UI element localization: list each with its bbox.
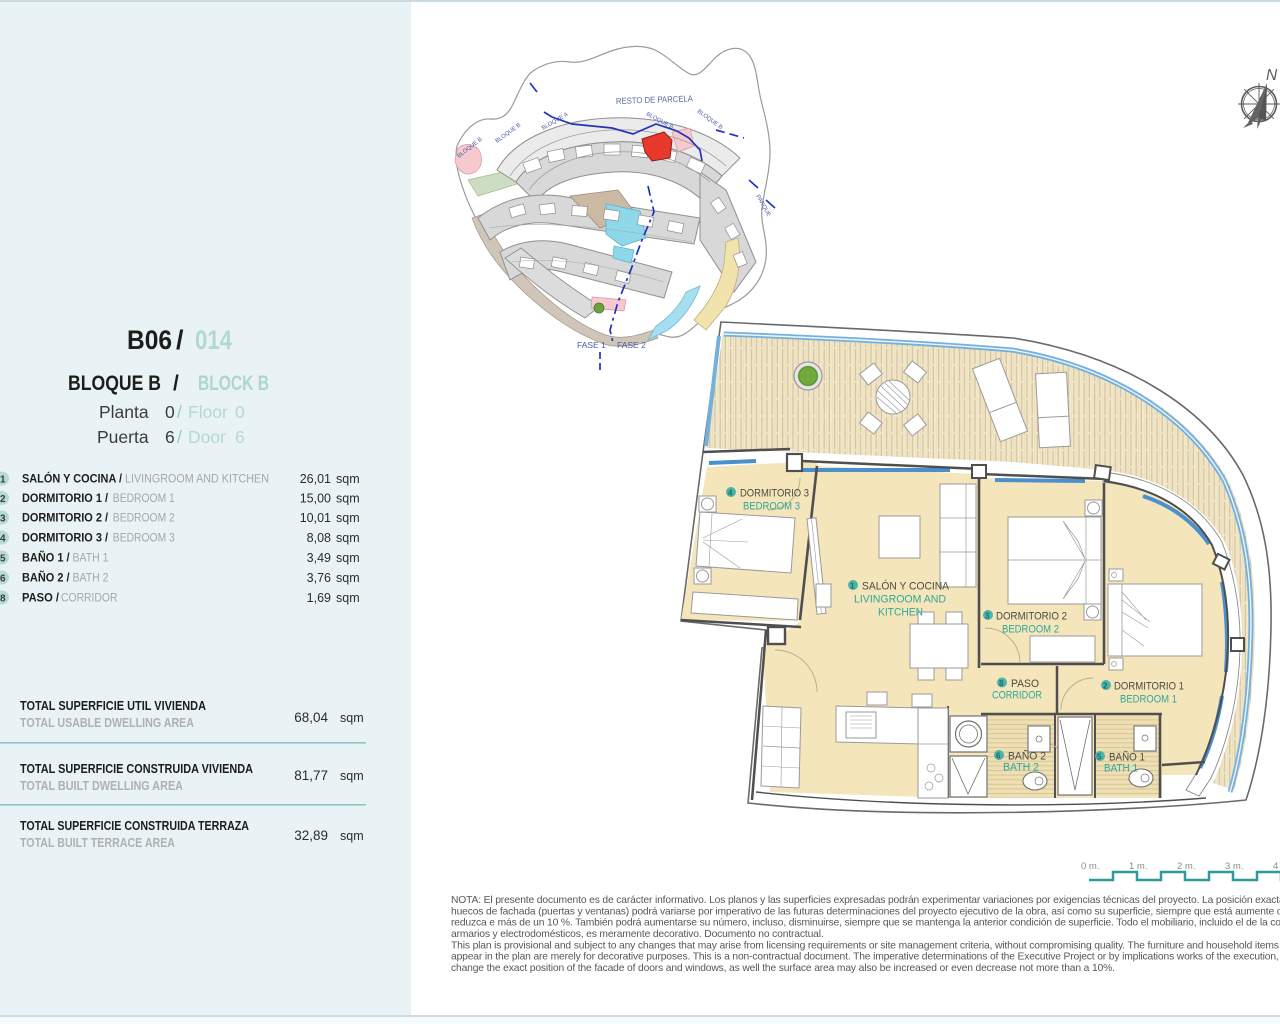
svg-text:014: 014: [195, 325, 232, 355]
svg-text:sqm: sqm: [340, 769, 364, 783]
svg-text:2: 2: [0, 494, 6, 505]
svg-text:sqm: sqm: [340, 829, 364, 843]
svg-text:BLOQUE B: BLOQUE B: [68, 372, 161, 395]
svg-text:8: 8: [0, 594, 6, 605]
svg-text:BAÑO 1 /: BAÑO 1 /: [22, 552, 70, 565]
svg-text:change the exact position of t: change the exact position of the facade …: [451, 963, 1115, 974]
svg-text:sqm: sqm: [336, 511, 360, 525]
svg-text:CORRIDOR: CORRIDOR: [992, 690, 1042, 702]
svg-text:SALÓN Y COCINA /: SALÓN Y COCINA /: [22, 473, 123, 486]
svg-text:DORMITORIO 1: DORMITORIO 1: [1114, 681, 1184, 693]
svg-text:4: 4: [728, 489, 733, 498]
svg-text:3,76: 3,76: [307, 571, 331, 585]
svg-text:huecos de fachada (puertas y v: huecos de fachada (puertas y ventanas) p…: [451, 906, 1280, 917]
svg-text:BEDROOM 1: BEDROOM 1: [1120, 694, 1177, 706]
svg-text:10,01: 10,01: [300, 511, 331, 525]
svg-text:3: 3: [0, 514, 6, 525]
svg-text:DORMITORIO 1 /: DORMITORIO 1 /: [22, 493, 109, 505]
svg-text:81,77: 81,77: [294, 768, 328, 783]
svg-text:15,00: 15,00: [300, 492, 331, 506]
svg-text:BEDROOM 2: BEDROOM 2: [1002, 624, 1059, 636]
svg-text:5: 5: [1097, 753, 1102, 762]
svg-text:1 m.: 1 m.: [1129, 861, 1147, 872]
svg-text:armarios y electrodomésticos,: armarios y electrodomésticos, es meramen…: [451, 929, 824, 940]
svg-text:N: N: [1266, 67, 1278, 84]
svg-text:3,49: 3,49: [307, 551, 331, 565]
svg-text:DORMITORIO 3: DORMITORIO 3: [740, 488, 809, 500]
svg-text:/: /: [176, 325, 184, 355]
svg-text:CORRIDOR: CORRIDOR: [61, 593, 118, 605]
svg-text:FASE 2: FASE 2: [617, 340, 646, 350]
svg-text:B06: B06: [127, 325, 172, 355]
svg-text:/: /: [177, 427, 182, 447]
svg-text:/: /: [177, 402, 182, 422]
svg-text:Door 6: Door 6: [188, 427, 245, 447]
svg-text:This plan is provisional and s: This plan is provisional and subject to …: [451, 940, 1280, 951]
svg-text:2: 2: [1103, 682, 1108, 691]
svg-text:TOTAL USABLE DWELLING AREA: TOTAL USABLE DWELLING AREA: [20, 715, 194, 730]
svg-text:TOTAL BUILT DWELLING AREA: TOTAL BUILT DWELLING AREA: [20, 778, 183, 793]
svg-text:BATH 1: BATH 1: [1104, 763, 1138, 775]
svg-text:SALÓN Y COCINA: SALÓN Y COCINA: [862, 580, 949, 593]
svg-text:NOTA: El presente documento es: NOTA: El presente documento es de caráct…: [451, 895, 1280, 906]
svg-text:sqm: sqm: [336, 551, 360, 565]
svg-text:DORMITORIO 3 /: DORMITORIO 3 /: [22, 533, 109, 545]
svg-text:1,69: 1,69: [307, 591, 331, 605]
svg-text:6: 6: [0, 574, 6, 585]
svg-text:68,04: 68,04: [294, 710, 328, 725]
svg-text:LIVINGROOM AND KITCHEN: LIVINGROOM AND KITCHEN: [125, 474, 269, 486]
svg-text:8,08: 8,08: [307, 531, 331, 545]
svg-text:26,01: 26,01: [300, 472, 331, 486]
svg-text:8: 8: [999, 679, 1004, 688]
svg-text:32,89: 32,89: [294, 828, 328, 843]
svg-text:Floor 0: Floor 0: [188, 402, 245, 422]
svg-text:TOTAL SUPERFICIE CONSTRUIDA VI: TOTAL SUPERFICIE CONSTRUIDA VIVIENDA: [20, 761, 254, 776]
svg-text:DORMITORIO 2 /: DORMITORIO 2 /: [22, 513, 109, 525]
svg-text:reduzca e más de un 10 %. Tamb: reduzca e más de un 10 %. También podrá …: [451, 918, 1280, 929]
svg-text:5: 5: [0, 554, 6, 565]
svg-text:TOTAL BUILT TERRACE AREA: TOTAL BUILT TERRACE AREA: [20, 835, 175, 850]
svg-text:sqm: sqm: [336, 472, 360, 486]
svg-text:BATH 2: BATH 2: [73, 573, 109, 585]
svg-text:sqm: sqm: [340, 711, 364, 725]
svg-text:sqm: sqm: [336, 571, 360, 585]
svg-text:2 m.: 2 m.: [1177, 861, 1195, 872]
svg-text:PASO /: PASO /: [22, 593, 60, 605]
svg-text:3: 3: [985, 612, 990, 621]
svg-text:BATH 2: BATH 2: [1003, 762, 1039, 774]
svg-text:KITCHEN: KITCHEN: [878, 607, 923, 619]
svg-text:BATH 1: BATH 1: [73, 553, 109, 565]
svg-text:BEDROOM 3: BEDROOM 3: [113, 533, 175, 545]
svg-text:1: 1: [0, 475, 6, 486]
svg-text:3 m.: 3 m.: [1225, 861, 1243, 872]
svg-text:TOTAL SUPERFICIE UTIL VIVIENDA: TOTAL SUPERFICIE UTIL VIVIENDA: [20, 698, 207, 713]
svg-text:FASE 1: FASE 1: [577, 340, 606, 350]
svg-text:/: /: [173, 372, 179, 395]
svg-text:1: 1: [850, 582, 855, 591]
svg-text:LIVINGROOM AND: LIVINGROOM AND: [854, 594, 946, 606]
svg-text:0 m.: 0 m.: [1081, 861, 1099, 872]
svg-text:appear in the plan are merely: appear in the plan are merely for decora…: [451, 952, 1280, 963]
svg-text:4 m.: 4 m.: [1273, 861, 1280, 872]
svg-text:DORMITORIO 2: DORMITORIO 2: [996, 611, 1067, 623]
svg-text:BEDROOM 3: BEDROOM 3: [743, 501, 800, 513]
svg-text:sqm: sqm: [336, 492, 360, 506]
svg-text:TOTAL SUPERFICIE CONSTRUIDA TE: TOTAL SUPERFICIE CONSTRUIDA TERRAZA: [20, 818, 249, 833]
svg-text:sqm: sqm: [336, 531, 360, 545]
svg-text:BEDROOM 1: BEDROOM 1: [113, 493, 175, 505]
svg-text:PASO: PASO: [1011, 678, 1039, 690]
svg-text:BLOCK B: BLOCK B: [198, 372, 269, 395]
svg-text:4: 4: [0, 534, 6, 545]
svg-text:6: 6: [996, 752, 1001, 761]
svg-text:sqm: sqm: [336, 591, 360, 605]
svg-text:BEDROOM 2: BEDROOM 2: [113, 513, 175, 525]
svg-text:BAÑO 2 /: BAÑO 2 /: [22, 572, 70, 585]
